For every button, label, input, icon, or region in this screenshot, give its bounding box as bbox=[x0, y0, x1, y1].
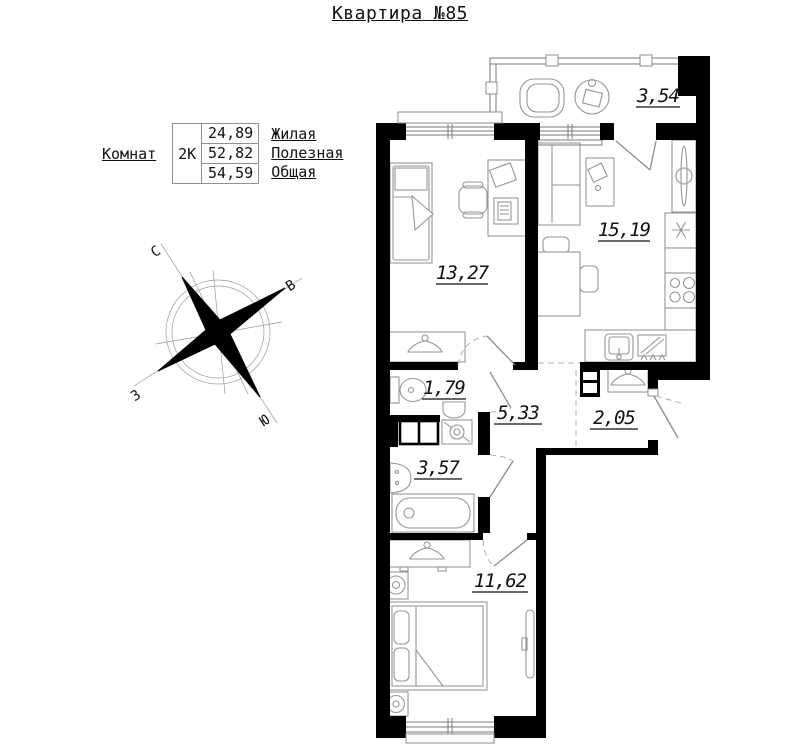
closet-wardrobe bbox=[608, 368, 648, 392]
balcony-mullion bbox=[640, 55, 652, 66]
closet-area-label: 2,05 bbox=[593, 407, 635, 429]
toilet-icon bbox=[390, 377, 426, 403]
wall-mirror bbox=[522, 610, 534, 678]
balcony-armchair bbox=[520, 79, 564, 117]
entrance-door bbox=[648, 389, 684, 438]
stove-icon bbox=[665, 273, 696, 308]
kitchen-sink-counter bbox=[585, 330, 696, 362]
kitchen-furniture bbox=[532, 140, 696, 362]
compass-south-label: Ю bbox=[257, 412, 273, 430]
kitchen-window bbox=[540, 124, 600, 139]
compass-east-label: В bbox=[283, 277, 299, 295]
room1-window bbox=[398, 112, 502, 139]
bathtub-icon bbox=[392, 494, 474, 532]
sofa bbox=[538, 143, 580, 225]
kitchen-counter bbox=[665, 308, 696, 330]
floor-plan: С В З Ю bbox=[0, 0, 800, 745]
tall-cabinet bbox=[672, 140, 696, 212]
single-bed bbox=[390, 163, 433, 263]
compass-west-label: З bbox=[128, 387, 144, 405]
desk bbox=[488, 160, 526, 236]
hallway-area-label: 5,33 bbox=[497, 402, 539, 424]
bedroom-window bbox=[406, 718, 494, 743]
bathroom-area-label: 3,57 bbox=[416, 457, 460, 479]
double-bed bbox=[388, 602, 487, 690]
bedroom-area-label: 11,62 bbox=[474, 570, 527, 592]
washing-machine-icon bbox=[442, 420, 472, 444]
balcony-mullion bbox=[486, 82, 497, 94]
kitchen-counter bbox=[665, 248, 696, 273]
bath-sink-icon bbox=[390, 463, 411, 493]
room1-door bbox=[458, 336, 515, 365]
bathroom-door bbox=[490, 455, 513, 497]
dining-table bbox=[532, 237, 598, 316]
compass-north-label: С bbox=[148, 243, 164, 261]
shaft-box bbox=[583, 383, 597, 393]
wc-area-label: 1,79 bbox=[423, 377, 465, 399]
floorplan-page: Квартира №85 Комнат 2К 24,89 52,82 54,59… bbox=[0, 0, 800, 745]
bedroom-wardrobe bbox=[385, 540, 470, 571]
fridge-icon bbox=[665, 213, 696, 248]
balcony-mullion bbox=[546, 55, 558, 66]
compass-star bbox=[158, 277, 285, 397]
shaft-box bbox=[583, 372, 597, 380]
kitchen-area-label: 15,19 bbox=[598, 219, 651, 241]
room1-furniture bbox=[385, 160, 526, 362]
bedroom-door bbox=[483, 540, 527, 566]
coffee-table bbox=[586, 158, 614, 206]
room1-wardrobe bbox=[385, 332, 465, 362]
laundry-counter bbox=[400, 421, 438, 444]
wc-sink-icon bbox=[443, 402, 465, 418]
balcony-table bbox=[575, 80, 609, 115]
room1-area-label: 13,27 bbox=[436, 262, 490, 284]
balcony-door bbox=[616, 141, 656, 170]
desk-chair bbox=[459, 182, 487, 218]
bedroom-furniture bbox=[385, 540, 534, 716]
compass-rose: С В З Ю bbox=[128, 243, 302, 430]
balcony-area-label: 3,54 bbox=[636, 85, 679, 107]
